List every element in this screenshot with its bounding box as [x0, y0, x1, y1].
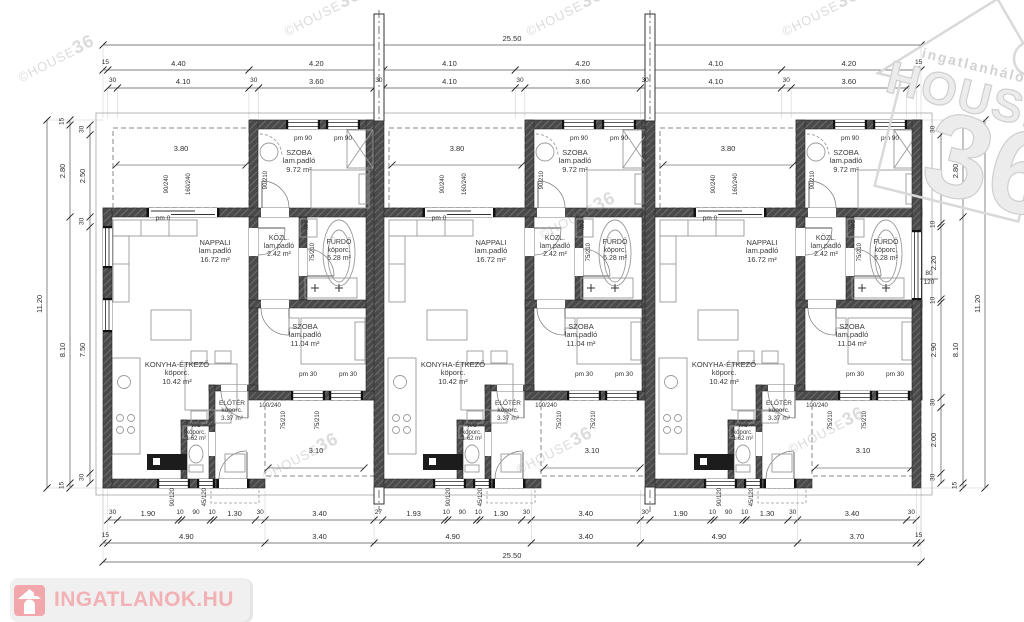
ingatlanok-logo: INGATLANOK.HU	[10, 578, 250, 622]
floor-plan-page: { "watermarks": { "small_prefix": "©HOUS…	[0, 0, 1024, 620]
floor-plan-drawing	[0, 0, 1024, 620]
ingatlanok-house-icon	[14, 585, 45, 616]
ingatlanok-logo-text: INGATLANOK.HU	[54, 588, 234, 612]
